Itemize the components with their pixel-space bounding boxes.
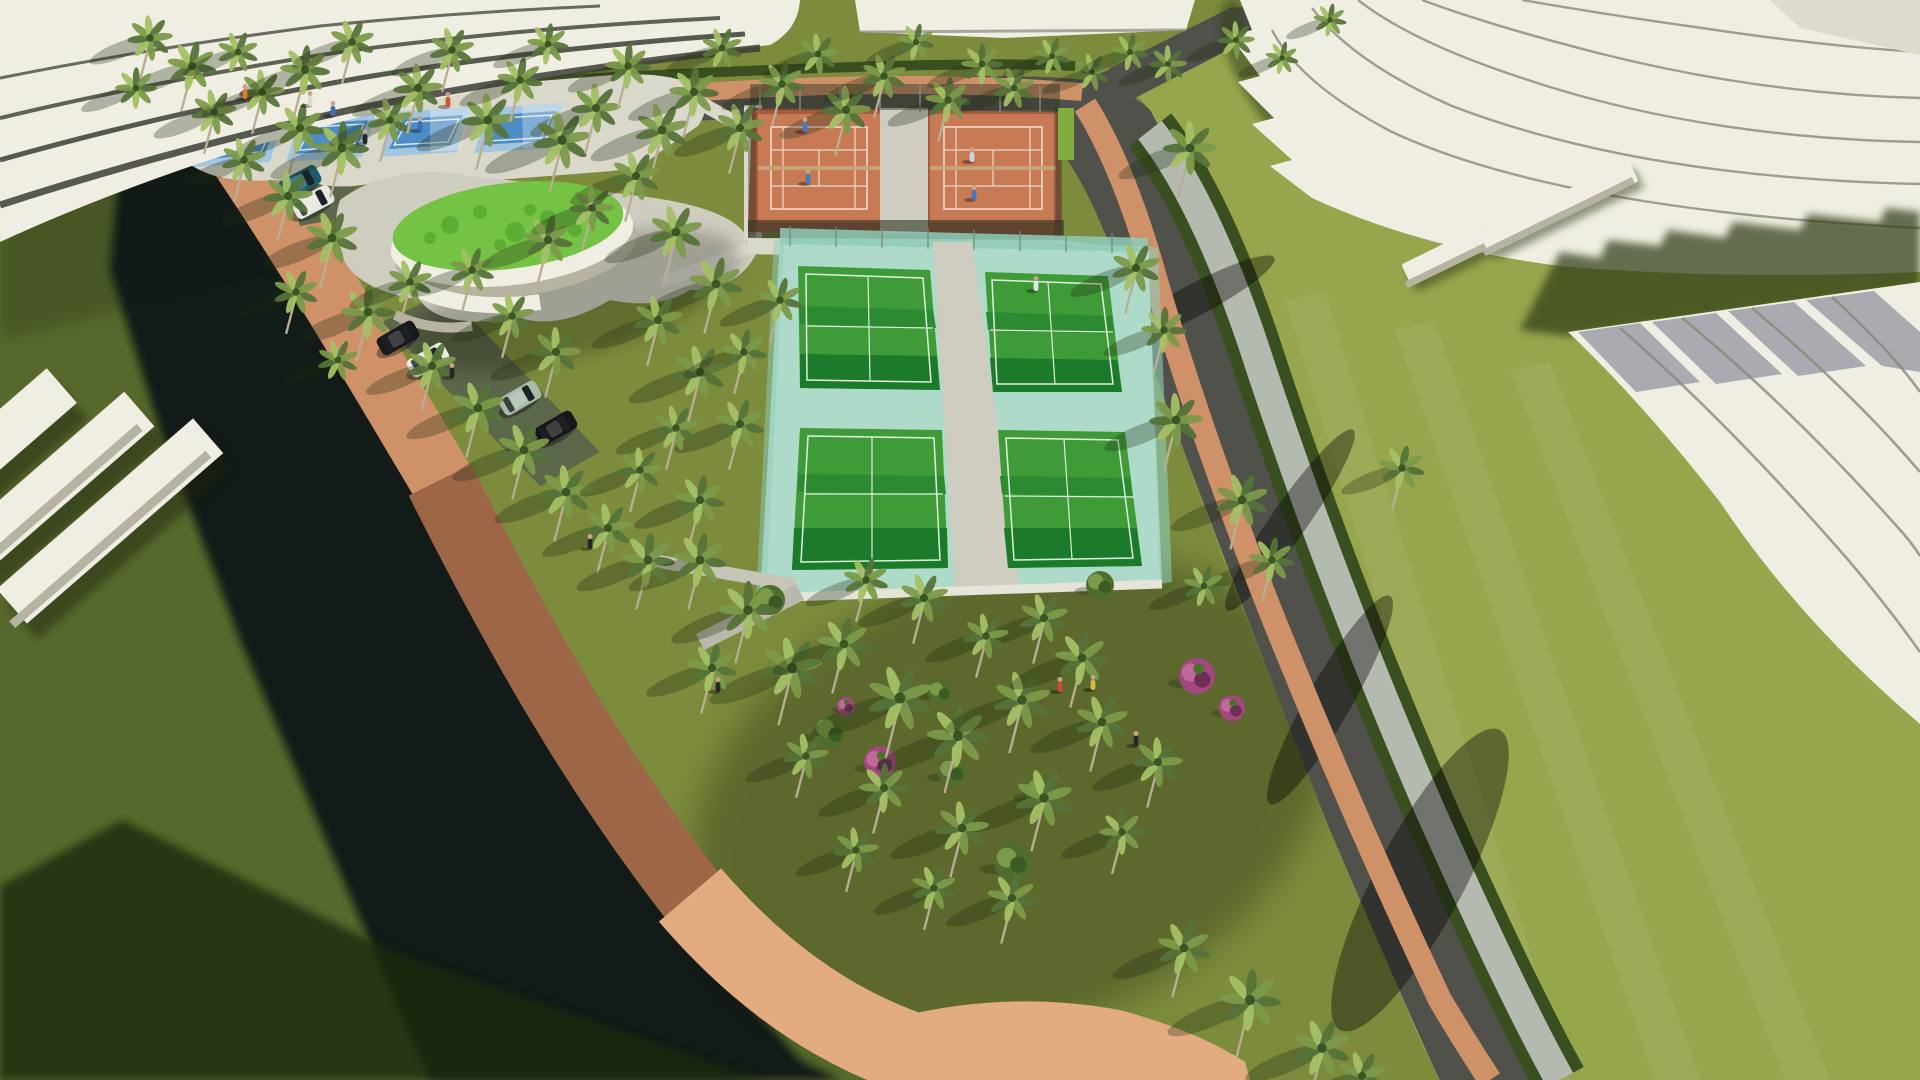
palm-crown [1011,85,1018,92]
person-head [243,84,248,89]
palm-crown [696,496,704,504]
person-body [806,174,811,184]
palm-crown [979,61,986,68]
palm-crown [284,192,292,200]
palm-crown [930,884,937,891]
palm-crown [1154,758,1162,766]
tennis-net [930,166,1056,170]
palm-crown [1398,464,1405,471]
palm-crown [562,488,571,497]
person-body [446,97,451,107]
person-head [1058,677,1063,682]
palm-crown [1078,654,1087,663]
palm-crown [1118,828,1125,835]
clay-tennis [744,82,1074,240]
palm-crown [982,632,989,639]
palm-crown [1201,583,1208,590]
person-head [806,169,811,174]
palm-crown [604,524,612,532]
palm-crown [1317,1043,1327,1053]
palm-crown [736,124,744,132]
palm-crown [1180,944,1189,953]
palm-crown [740,348,747,355]
person-head [446,92,451,97]
palm-crown [484,116,493,125]
palm-crown [1165,61,1171,67]
palm-crown [624,62,631,69]
person-body [970,152,975,162]
palm-crown [588,204,595,211]
palm-crown [292,288,299,295]
palm-crown [840,640,849,649]
person-body [972,190,977,200]
person-body [363,134,368,144]
palm-crown [632,172,640,180]
person-head [363,129,368,134]
palm-crown [1186,144,1195,153]
palm-crown [1238,496,1247,505]
palm-crown [658,126,667,135]
palm-crown [672,424,679,431]
palm-crown [1172,416,1181,425]
person-body [308,96,313,106]
person-head [308,91,313,96]
palm-crown [778,80,785,87]
person-body [450,368,455,378]
palm-crown [913,39,919,45]
person-head [972,185,977,190]
palm-crown [133,85,140,92]
palm-crown [708,664,716,672]
palm-crown [736,420,744,428]
palm-crown [672,228,681,237]
person-head [418,116,423,121]
palm-crown [468,266,475,273]
palm-crown [545,41,552,48]
person-body [1034,281,1039,291]
palm-crown [516,76,523,83]
person-head [331,101,336,106]
palm-crown [690,88,698,96]
person-body [588,539,593,549]
palm-crown [1268,556,1275,563]
palm-crown [508,312,515,319]
person-body [1091,680,1096,690]
palm-crown [880,784,888,792]
palm-crown [1040,614,1048,622]
palm-crown [557,135,567,145]
palm-crown [592,104,600,112]
palm-crown [802,752,809,759]
palm-crown [1098,718,1107,727]
person-body [1058,682,1063,692]
person-body [716,682,721,692]
grass-court [998,430,1142,568]
palm-crown [386,116,393,123]
person-body [803,122,808,132]
palm-crown [1160,326,1167,333]
palm-crown [880,72,887,79]
palm-crown [544,236,552,244]
palm-crown [636,466,643,473]
palm-crown [146,34,153,41]
person-head [1091,675,1096,680]
aerial-render: Aerial 3D render — resort sports park wi… [0,0,1920,1080]
palm-crown [712,280,721,289]
person-body [243,89,248,99]
palm-crown [719,45,726,52]
palm-crown [654,316,662,324]
palm-crown [240,156,247,163]
person-body [331,106,336,116]
palm-crown [1233,37,1239,43]
palm-crown [520,446,529,455]
palm-crown [895,693,906,704]
palm-crown [1132,264,1140,272]
person-body [418,121,423,131]
palm-crown [1017,695,1027,705]
palm-crown [920,594,928,602]
palm-crown [1279,55,1284,60]
palm-crown [448,46,455,53]
palm-crown [235,49,242,56]
palm-crown [348,38,355,45]
palm-crown [474,404,483,413]
palm-crown [696,556,705,565]
palm-crown [958,824,967,833]
palm-crown [944,96,951,103]
palm-crown [414,84,422,92]
person-head [716,677,721,682]
person-head [803,117,808,122]
palm-crown [428,362,436,370]
clay-court [930,114,1056,222]
palm-crown [335,357,342,364]
palm-crown [1049,53,1055,59]
palm-crown [552,348,560,356]
palm-crown [1327,17,1332,22]
palm-crown [1358,1072,1366,1080]
palm-crown [1245,995,1255,1005]
grass-court [792,428,948,570]
palm-crown [296,124,304,132]
palm-crown [364,308,373,317]
palm-crown [776,296,783,303]
palm-crown [852,846,859,853]
person-body [1134,736,1139,746]
clay-center-walk [880,108,928,234]
palm-crown [1008,894,1016,902]
person-head [1134,731,1139,736]
palm-crown [1039,793,1049,803]
grass-court [798,266,940,390]
tennis-net [758,166,880,170]
person-head [588,534,593,539]
palm-crown [328,234,337,243]
palm-crown [644,556,653,565]
person-head [970,147,975,152]
person-head [1034,276,1039,281]
palm-crown [815,51,822,58]
palm-crown [1127,49,1133,55]
palm-crown [406,278,413,285]
hedge-strip [1058,108,1074,160]
person-head [450,363,455,368]
palm-crown [842,106,850,114]
palm-crown [862,576,869,583]
palm-crown [743,605,753,615]
